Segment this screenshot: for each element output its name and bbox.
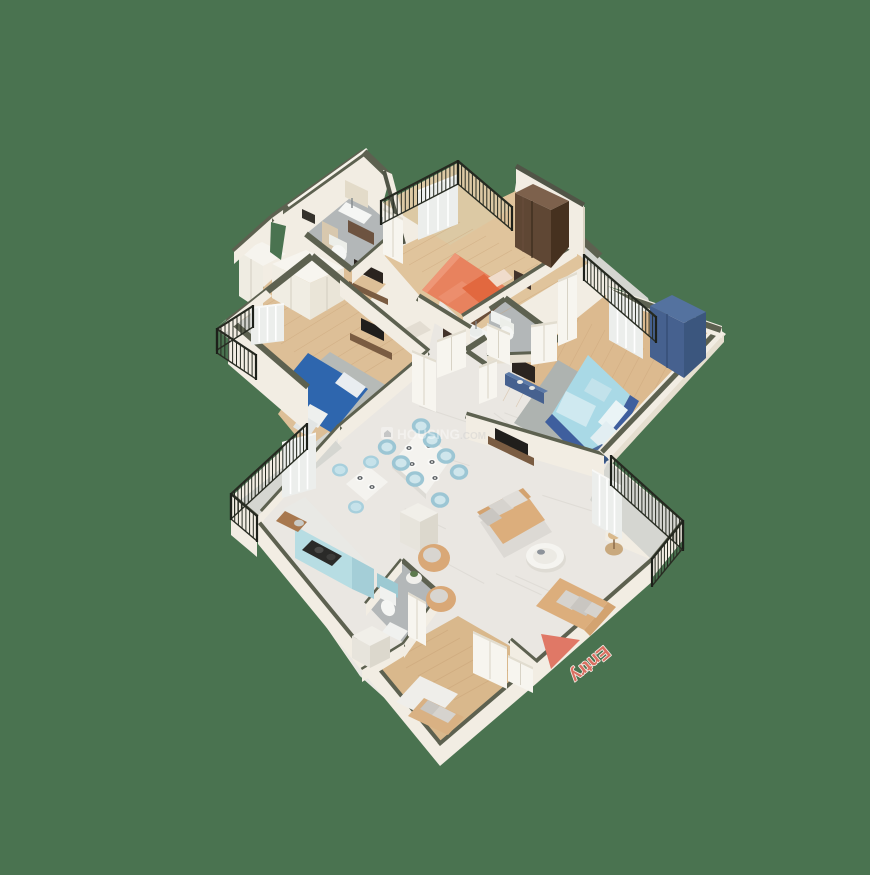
svg-text:HOUSING: HOUSING bbox=[397, 427, 460, 442]
svg-text:.COM: .COM bbox=[460, 431, 486, 442]
